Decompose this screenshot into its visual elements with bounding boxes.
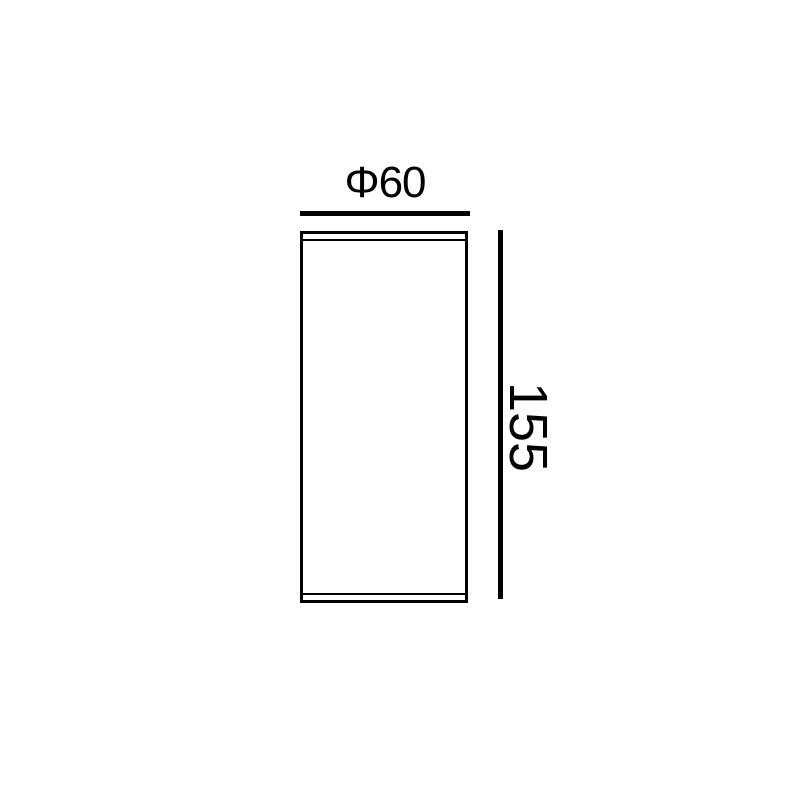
diameter-dimension-label: Φ60: [300, 158, 470, 208]
bottom-rim-line: [303, 593, 465, 595]
drawing-canvas: Φ60 155: [0, 0, 800, 800]
height-dimension-label: 155: [501, 382, 555, 472]
cylinder-body-outline: [300, 231, 468, 603]
diameter-dimension-line: [300, 211, 470, 216]
top-rim-line: [303, 239, 465, 241]
